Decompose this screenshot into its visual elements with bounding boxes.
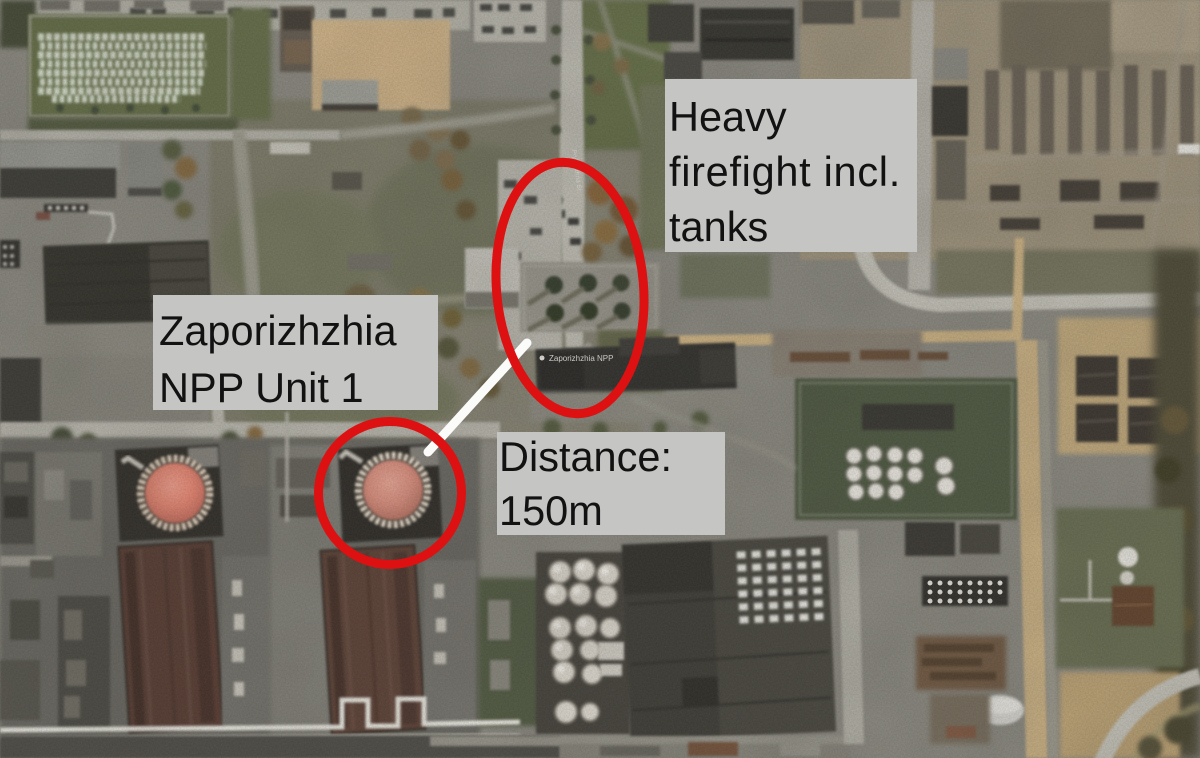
svg-text:NPP Unit 1: NPP Unit 1 <box>159 364 364 411</box>
svg-text:Heavy: Heavy <box>669 93 787 140</box>
svg-text:firefight incl.: firefight incl. <box>669 148 901 195</box>
svg-text:tanks: tanks <box>669 203 768 250</box>
svg-text:Distance:: Distance: <box>499 433 672 480</box>
svg-text:Zaporizhzhia: Zaporizhzhia <box>159 307 398 354</box>
svg-text:150m: 150m <box>499 487 603 534</box>
